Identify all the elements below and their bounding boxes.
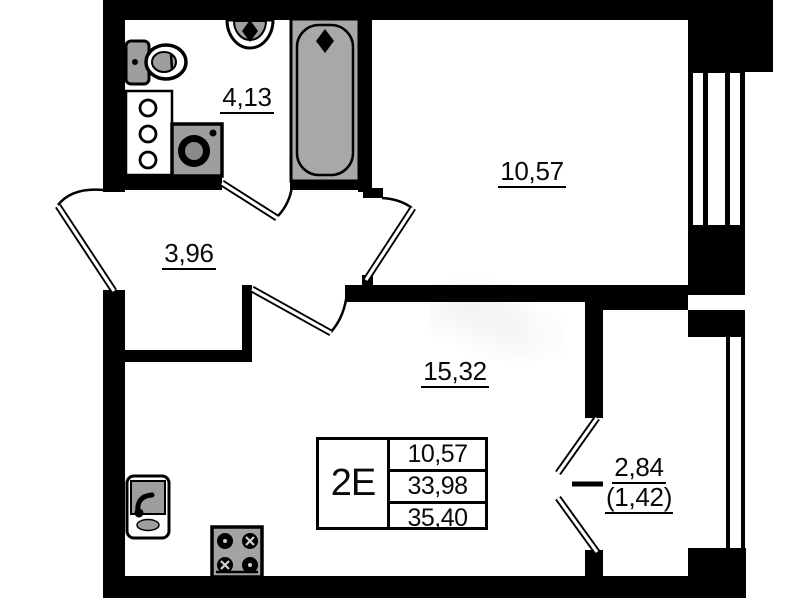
balcony-door <box>558 418 603 552</box>
kitchen-sink-icon <box>127 476 169 538</box>
room-area-label-balcony: 2,84 <box>610 453 668 484</box>
bathroom-area-value: 4,13 <box>220 83 273 114</box>
unit-type-cell: 2E <box>319 440 390 527</box>
room-area-label-bathroom: 4,13 <box>216 83 278 114</box>
room-area-label-living-kitchen: 15,32 <box>421 357 489 388</box>
stove-icon <box>212 527 262 577</box>
bedroom-door <box>366 198 413 280</box>
bedroom-window-icon <box>688 73 745 225</box>
area-without-balcony-cell: 33,98 <box>390 469 485 504</box>
floor-plan: 4,13 3,96 10,57 15,32 2,84 (1,42) 2E 10,… <box>0 0 799 600</box>
living-room-door <box>252 289 347 333</box>
area-summary-table: 2E 10,57 33,98 35,40 <box>316 437 488 530</box>
washing-machine-icon <box>172 124 222 176</box>
bathroom-sink-icon <box>227 20 273 48</box>
balcony-glazing-icon <box>726 337 745 548</box>
room-area-label-balcony-coef: (1,42) <box>599 483 679 514</box>
living-kitchen-area-value: 15,32 <box>421 357 489 388</box>
room-area-label-hallway: 3,96 <box>160 239 218 270</box>
balcony-area-value: 2,84 <box>612 453 665 484</box>
living-area-cell: 10,57 <box>390 440 485 469</box>
toilet-icon <box>126 41 186 84</box>
entry-door <box>58 190 114 291</box>
area-summary-rows: 10,57 33,98 35,40 <box>390 440 485 527</box>
room-area-label-bedroom: 10,57 <box>497 157 567 188</box>
bathroom-door <box>222 183 292 218</box>
bedroom-area-value: 10,57 <box>498 157 566 188</box>
balcony-area-coef-value: (1,42) <box>605 483 673 514</box>
total-area-cell: 35,40 <box>390 504 485 533</box>
storage-shelf-icon <box>126 91 172 175</box>
bathtub-icon <box>291 19 359 181</box>
hallway-area-value: 3,96 <box>162 239 215 270</box>
